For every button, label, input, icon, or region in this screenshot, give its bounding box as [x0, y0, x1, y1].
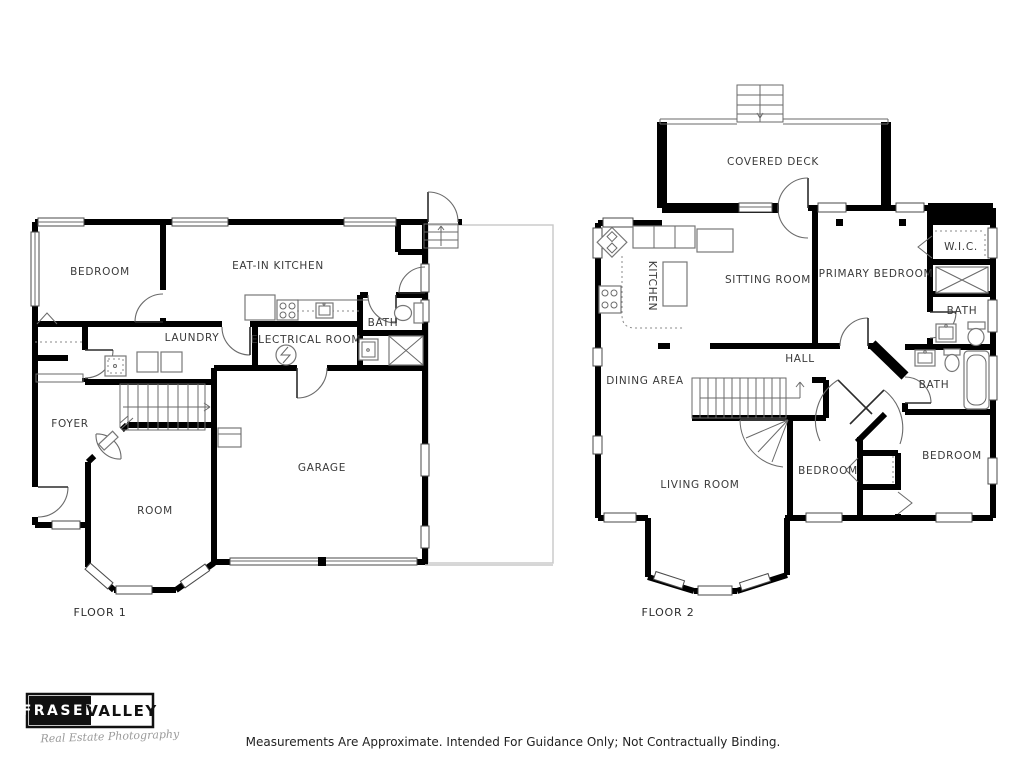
floor1-title: FLOOR 1: [73, 606, 126, 619]
room-label-primary-bedroom: PRIMARY BEDROOM: [819, 268, 934, 280]
disclaimer-text: Measurements Are Approximate. Intended F…: [246, 735, 781, 749]
garage-door: [230, 557, 553, 566]
room-label-bath-lower: BATH: [919, 379, 950, 391]
kitchen-island: [663, 262, 687, 306]
logo-text-valley: VALLEY: [86, 702, 157, 720]
laundry-sink-icon: [105, 356, 126, 376]
electrical-symbol-icon: [276, 345, 296, 365]
laundry-fixtures: [105, 352, 182, 376]
sofa: [633, 226, 733, 252]
washer-icon: [137, 352, 158, 372]
post: [836, 219, 843, 226]
bath-sink-icon: [936, 324, 956, 342]
room-label-laundry: LAUNDRY: [165, 332, 220, 344]
floor1-plan: BEDROOM EAT-IN KITCHEN LAUNDRY ELECTRICA…: [31, 192, 553, 619]
toilet-icon: [968, 322, 985, 346]
logo-tagline: Real Estate Photography: [39, 728, 180, 746]
room-label-room: ROOM: [137, 505, 173, 517]
kitchen-sink-icon: [316, 303, 333, 318]
shower-icon: [936, 267, 988, 293]
room-label-bedroom-right: BEDROOM: [922, 450, 982, 462]
floor2-kitchen-fixtures: [597, 226, 733, 328]
closet-bifold-right-icon: [898, 492, 912, 514]
room-label-electrical-room: ELECTRICAL ROOM: [251, 334, 361, 346]
post: [899, 219, 906, 226]
room-label-bedroom: BEDROOM: [70, 266, 130, 278]
floor1-kitchen-fixtures: [245, 295, 368, 320]
room-label-kitchen: KITCHEN: [646, 261, 658, 311]
brand-logo: FRASER VALLEY Real Estate Photography: [22, 694, 181, 745]
dryer-icon: [161, 352, 182, 372]
floorplan-page: BEDROOM EAT-IN KITCHEN LAUNDRY ELECTRICA…: [0, 0, 1024, 768]
utility-sink-icon: [359, 339, 378, 360]
room-label-garage: GARAGE: [298, 462, 346, 474]
furnace-icon: [218, 428, 241, 447]
toilet-icon: [395, 303, 424, 323]
room-label-wic: W.I.C.: [944, 241, 978, 253]
room-label-covered-deck: COVERED DECK: [727, 156, 819, 168]
toilet-icon: [944, 349, 960, 372]
room-label-hall: HALL: [785, 353, 815, 365]
floor1-doors: [35, 267, 425, 517]
bath-sink-icon: [915, 350, 935, 366]
floor2-plan: COVERED DECK KITCHEN SITTING ROOM PRIMAR…: [593, 85, 997, 619]
room-label-bedroom-center: BEDROOM: [798, 465, 858, 477]
room-label-dining-area: DINING AREA: [606, 375, 684, 387]
shower-icon: [389, 336, 423, 365]
closet-slider: [36, 374, 83, 382]
floorplan-canvas: BEDROOM EAT-IN KITCHEN LAUNDRY ELECTRICA…: [0, 0, 1024, 768]
covered-deck-structure: [660, 85, 888, 208]
room-label-foyer: FOYER: [51, 418, 89, 430]
floor2-title: FLOOR 2: [641, 606, 694, 619]
cooktop-icon: [599, 286, 621, 313]
stove-icon: [277, 300, 298, 320]
room-label-living-room: LIVING ROOM: [660, 479, 739, 491]
room-label-bath-f1: BATH: [368, 317, 399, 329]
room-label-sitting-room: SITTING ROOM: [725, 274, 811, 286]
fridge-icon: [245, 295, 275, 320]
room-label-eat-in-kitchen: EAT-IN KITCHEN: [232, 260, 324, 272]
driveway-outline: [428, 225, 553, 563]
entry-door: [424, 192, 458, 248]
room-label-bath-upper: BATH: [947, 305, 978, 317]
bathtub-icon: [964, 351, 989, 409]
